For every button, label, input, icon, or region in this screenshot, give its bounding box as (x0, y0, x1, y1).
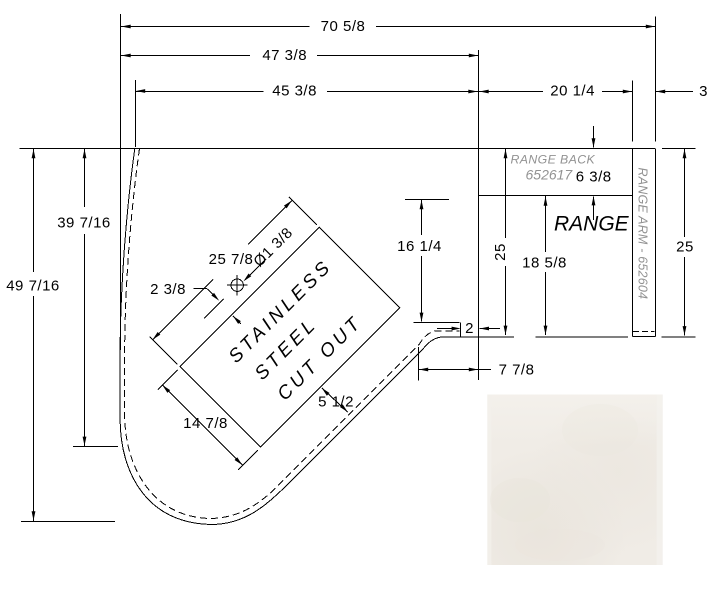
svg-text:25: 25 (676, 239, 694, 256)
svg-text:49 7/16: 49 7/16 (6, 278, 60, 295)
svg-text:20 1/4: 20 1/4 (550, 83, 595, 100)
svg-text:70 5/8: 70 5/8 (321, 18, 366, 35)
svg-text:RANGE BACK: RANGE BACK (511, 152, 596, 166)
svg-text:7 7/8: 7 7/8 (499, 361, 535, 378)
svg-text:RANGE ARM - 652604: RANGE ARM - 652604 (636, 168, 650, 300)
svg-text:16 1/4: 16 1/4 (397, 238, 442, 255)
svg-text:39 7/16: 39 7/16 (57, 215, 111, 232)
svg-text:2 3/8: 2 3/8 (150, 281, 186, 298)
svg-text:45 3/8: 45 3/8 (272, 83, 317, 100)
svg-text:RANGE: RANGE (554, 213, 630, 236)
svg-text:18 5/8: 18 5/8 (522, 254, 567, 271)
svg-text:5 1/2: 5 1/2 (318, 394, 354, 411)
svg-text:25: 25 (492, 243, 509, 261)
svg-text:14 7/8: 14 7/8 (183, 415, 228, 432)
svg-text:652617: 652617 (526, 167, 574, 183)
svg-text:3: 3 (699, 83, 708, 100)
svg-text:47 3/8: 47 3/8 (262, 47, 307, 64)
svg-text:2: 2 (465, 320, 474, 337)
svg-text:6 3/8: 6 3/8 (576, 169, 612, 186)
svg-text:25 7/8: 25 7/8 (209, 251, 254, 268)
